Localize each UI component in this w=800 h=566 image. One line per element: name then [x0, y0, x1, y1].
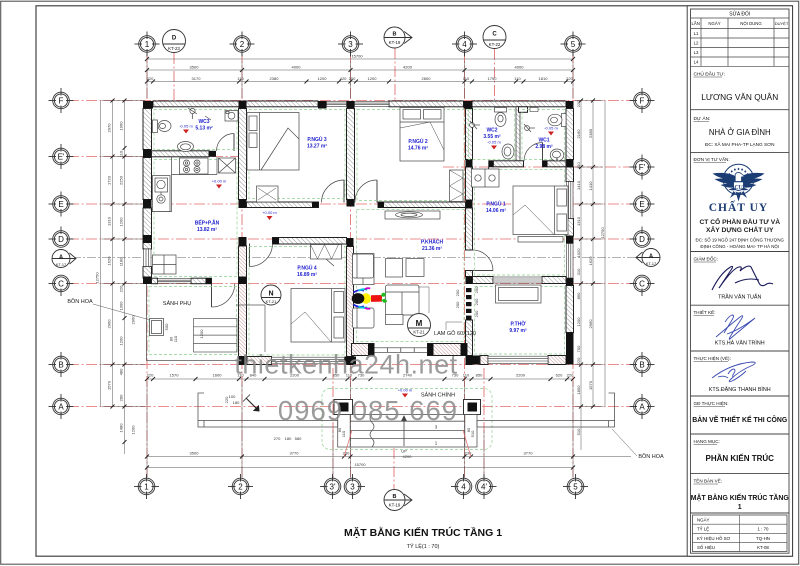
svg-text:LƯƠNG VĂN QUÂN: LƯƠNG VĂN QUÂN	[701, 92, 778, 102]
svg-text:DUYỆT: DUYỆT	[775, 21, 789, 26]
svg-text:180: 180	[233, 400, 240, 405]
svg-text:13.82 m²: 13.82 m²	[197, 227, 217, 233]
svg-text:-0.05 m: -0.05 m	[487, 140, 501, 145]
svg-text:2960: 2960	[588, 319, 593, 329]
svg-text:0969 085 669: 0969 085 669	[278, 395, 458, 426]
svg-text:15700: 15700	[354, 462, 366, 467]
svg-text:P.NGỦ 4: P.NGỦ 4	[297, 265, 317, 272]
svg-text:E': E'	[58, 152, 65, 161]
svg-text:2250: 2250	[119, 175, 124, 185]
svg-text:CHẤT UY: CHẤT UY	[709, 199, 769, 214]
svg-text:+0.00 m: +0.00 m	[262, 210, 277, 215]
svg-text:L2: L2	[694, 41, 699, 46]
svg-text:5.13 m²: 5.13 m²	[195, 126, 213, 132]
svg-text:L3: L3	[694, 50, 699, 55]
svg-text:LAM GỖ 60X120: LAM GỖ 60X120	[434, 330, 476, 337]
svg-text:1620: 1620	[107, 256, 112, 266]
svg-text:220: 220	[224, 396, 229, 403]
svg-text:KT-21: KT-21	[266, 299, 277, 304]
svg-text:4: 4	[462, 40, 467, 49]
svg-text:860: 860	[576, 292, 581, 299]
svg-text:B: B	[393, 32, 397, 38]
svg-text:E: E	[639, 200, 644, 209]
svg-text:+0.00 m: +0.00 m	[212, 179, 227, 184]
svg-text:thietkenha24h.net: thietkenha24h.net	[234, 350, 457, 380]
svg-text:1200: 1200	[576, 317, 581, 327]
svg-text:16.89 m²: 16.89 m²	[297, 272, 317, 278]
svg-text:LẦN: LẦN	[692, 21, 700, 26]
svg-text:220: 220	[567, 373, 574, 378]
svg-text:12750: 12750	[600, 227, 605, 239]
svg-text:ĐỊNH CÔNG - HOÀNG MAI- TP HÀ N: ĐỊNH CÔNG - HOÀNG MAI- TP HÀ NỘI	[700, 244, 779, 249]
svg-text:3: 3	[348, 40, 353, 49]
svg-text:100: 100	[229, 394, 236, 399]
svg-text:WC2: WC2	[486, 128, 497, 134]
svg-text:B: B	[393, 494, 397, 500]
svg-text:HẠNG MỤC:: HẠNG MỤC:	[694, 439, 720, 444]
svg-text:NỘI DUNG: NỘI DUNG	[740, 21, 762, 26]
svg-text:2160: 2160	[576, 129, 581, 139]
svg-text:-0.05 m: -0.05 m	[544, 126, 558, 131]
svg-text:P.NGỦ 3: P.NGỦ 3	[307, 136, 327, 143]
svg-text:M: M	[416, 319, 423, 328]
svg-text:1810: 1810	[539, 76, 549, 81]
svg-text:KT-17: KT-17	[56, 263, 66, 267]
svg-text:2960: 2960	[107, 319, 112, 329]
svg-text:1020: 1020	[576, 248, 581, 258]
svg-text:310: 310	[576, 268, 581, 275]
svg-text:ĐC: SỐ 19 NGÕ 247 ĐỊNH CÔNG T: ĐC: SỐ 19 NGÕ 247 ĐỊNH CÔNG THƯỢNG	[696, 238, 785, 243]
svg-text:E: E	[58, 200, 63, 209]
svg-text:+0.00 m: +0.00 m	[398, 388, 413, 393]
svg-text:1300: 1300	[119, 301, 124, 311]
svg-text:KT-08: KT-08	[757, 545, 769, 550]
svg-text:2.98 m²: 2.98 m²	[535, 144, 553, 150]
svg-text:3500: 3500	[190, 65, 200, 70]
svg-text:CU: CU	[734, 185, 743, 191]
svg-text:C: C	[639, 279, 645, 288]
svg-text:700: 700	[576, 345, 581, 352]
svg-text:3: 3	[350, 482, 355, 491]
svg-text:420: 420	[340, 76, 347, 81]
svg-text:580: 580	[295, 436, 302, 441]
svg-text:KT-22: KT-22	[489, 42, 501, 47]
svg-text:200: 200	[474, 286, 479, 293]
svg-text:1620: 1620	[588, 256, 593, 266]
svg-text:14.76 m²: 14.76 m²	[408, 146, 428, 152]
svg-text:P.THỜ: P.THỜ	[510, 320, 526, 328]
svg-text:3770: 3770	[524, 451, 534, 456]
svg-text:F: F	[59, 96, 64, 105]
svg-text:SỐ HIỆU: SỐ HIỆU	[697, 545, 715, 550]
svg-text:D: D	[639, 235, 645, 244]
svg-text:4000: 4000	[292, 65, 302, 70]
svg-text:TÊN BẢN VẼ:: TÊN BẢN VẼ:	[694, 477, 723, 484]
svg-text:14.06 m²: 14.06 m²	[486, 208, 506, 214]
svg-text:ĐC: XÃ MAI PHA-TP LẠNG SƠN: ĐC: XÃ MAI PHA-TP LẠNG SƠN	[705, 141, 775, 147]
svg-text:13.27 m²: 13.27 m²	[307, 144, 327, 150]
svg-text:4: 4	[461, 482, 466, 491]
svg-text:B: B	[58, 360, 63, 369]
svg-text:1200: 1200	[119, 217, 124, 227]
svg-text:4000: 4000	[515, 65, 525, 70]
svg-text:1: 1	[144, 482, 149, 491]
svg-text:KT-21: KT-21	[413, 330, 425, 335]
svg-text:NGÀY: NGÀY	[697, 518, 710, 523]
svg-text:KT-19: KT-19	[389, 40, 401, 45]
svg-text:NGÀY: NGÀY	[708, 21, 720, 26]
svg-text:KTS.ĐẶNG THANH BÌNH: KTS.ĐẶNG THANH BÌNH	[709, 386, 771, 393]
svg-text:220: 220	[576, 357, 581, 364]
svg-text:2960: 2960	[131, 315, 136, 325]
svg-text:1200: 1200	[131, 425, 136, 435]
svg-text:1600: 1600	[213, 373, 223, 378]
svg-text:9.97 m²: 9.97 m²	[509, 328, 527, 334]
svg-text:1570: 1570	[107, 380, 112, 390]
svg-text:280: 280	[119, 394, 124, 401]
svg-text:1200: 1200	[119, 336, 124, 346]
svg-text:230: 230	[465, 451, 472, 456]
svg-text:THỰC HIỆN (VẼ):: THỰC HIỆN (VẼ):	[694, 354, 731, 361]
svg-text:1960: 1960	[119, 121, 124, 131]
svg-text:1480: 1480	[119, 423, 124, 433]
svg-text:200: 200	[455, 289, 460, 296]
svg-text:220: 220	[576, 100, 581, 107]
svg-text:620: 620	[556, 373, 563, 378]
svg-text:P.NGỦ 2: P.NGỦ 2	[408, 138, 428, 145]
svg-text:200: 200	[349, 76, 356, 81]
svg-text:4200: 4200	[403, 454, 413, 459]
svg-text:220: 220	[566, 76, 573, 81]
svg-text:-0.05 m: -0.05 m	[179, 124, 193, 129]
svg-text:A: A	[649, 254, 654, 260]
svg-text:510: 510	[470, 430, 475, 437]
svg-text:GIÁM ĐỐC:: GIÁM ĐỐC:	[694, 256, 719, 262]
svg-text:3500: 3500	[190, 451, 200, 456]
svg-text:GĐ THỰC HIỆN:: GĐ THỰC HIỆN:	[694, 399, 729, 406]
svg-text:4200: 4200	[403, 65, 413, 70]
svg-text:1310: 1310	[107, 216, 112, 226]
svg-text:110: 110	[237, 76, 244, 81]
svg-text:P.NGỦ 1: P.NGỦ 1	[486, 201, 506, 208]
svg-text:200: 200	[474, 298, 479, 305]
svg-text:THIẾT KẾ:: THIẾT KẾ:	[694, 309, 716, 315]
svg-text:3770: 3770	[290, 451, 300, 456]
svg-text:BẾP+P.ĂN: BẾP+P.ĂN	[195, 220, 220, 227]
svg-text:N: N	[268, 291, 273, 298]
svg-text:A: A	[58, 402, 64, 411]
svg-text:3': 3'	[330, 482, 336, 491]
svg-text:1570: 1570	[588, 380, 593, 390]
svg-text:110: 110	[341, 430, 346, 437]
svg-text:D: D	[58, 235, 64, 244]
svg-text:KTS.HÀ VĂN TRÌNH: KTS.HÀ VĂN TRÌNH	[715, 340, 765, 347]
svg-text:110: 110	[173, 335, 178, 342]
svg-text:15700: 15700	[351, 54, 363, 59]
svg-text:1850: 1850	[576, 385, 581, 395]
svg-text:L1: L1	[694, 31, 699, 36]
svg-text:1200: 1200	[318, 76, 328, 81]
svg-text:NHÀ Ở GIA ĐÌNH: NHÀ Ở GIA ĐÌNH	[709, 128, 771, 137]
svg-text:110: 110	[119, 150, 124, 157]
svg-text:CHỦ ĐẦU TƯ:: CHỦ ĐẦU TƯ:	[694, 71, 725, 78]
svg-text:510: 510	[576, 428, 581, 435]
svg-text:220: 220	[119, 285, 124, 292]
svg-text:SẢNH PHỤ: SẢNH PHỤ	[163, 300, 191, 307]
svg-text:F': F'	[639, 163, 646, 172]
svg-text:C: C	[492, 32, 497, 38]
svg-text:TQ-HN: TQ-HN	[756, 536, 770, 541]
svg-text:220: 220	[147, 373, 154, 378]
svg-text:500: 500	[164, 323, 169, 330]
svg-text:2: 2	[240, 40, 245, 49]
svg-text:WC3: WC3	[198, 119, 209, 125]
svg-text:BỒN HOA: BỒN HOA	[638, 453, 664, 460]
svg-text:KT-19: KT-19	[389, 503, 401, 508]
svg-text:110: 110	[514, 76, 521, 81]
svg-text:2380: 2380	[588, 128, 593, 138]
svg-text:2200: 2200	[516, 373, 526, 378]
svg-text:1180: 1180	[119, 257, 124, 266]
svg-text:SỬA ĐỔI: SỬA ĐỔI	[729, 11, 750, 18]
svg-text:BỒN HOA: BỒN HOA	[67, 298, 93, 305]
svg-text:5: 5	[571, 40, 576, 49]
svg-text:KT-17: KT-17	[646, 262, 656, 266]
svg-text:220: 220	[147, 76, 154, 81]
svg-text:D: D	[172, 36, 177, 42]
svg-text:L4: L4	[694, 60, 699, 65]
svg-text:230: 230	[343, 451, 350, 456]
svg-text:2: 2	[238, 482, 243, 491]
svg-text:KÝ HIỆU HỒ SƠ: KÝ HIỆU HỒ SƠ	[697, 536, 731, 541]
svg-text:A: A	[59, 255, 64, 261]
svg-text:C: C	[58, 279, 64, 288]
svg-text:1720: 1720	[107, 175, 112, 185]
svg-text:P.KHÁCH: P.KHÁCH	[421, 239, 444, 246]
svg-text:5: 5	[573, 482, 578, 491]
svg-text:B: B	[639, 360, 644, 369]
svg-text:2800: 2800	[422, 76, 432, 81]
svg-text:TỶ LỆ(1 : 70): TỶ LỆ(1 : 70)	[407, 542, 440, 550]
svg-text:WC1: WC1	[538, 138, 549, 144]
svg-text:270: 270	[274, 436, 281, 441]
svg-text:12750: 12750	[95, 272, 100, 284]
svg-text:21.36 m²: 21.36 m²	[422, 246, 442, 252]
svg-text:F: F	[640, 96, 645, 105]
svg-text:1750: 1750	[488, 76, 498, 81]
svg-text:1310: 1310	[576, 216, 581, 226]
svg-text:KT-23: KT-23	[168, 46, 180, 51]
svg-text:180: 180	[285, 436, 292, 441]
svg-text:200: 200	[474, 310, 479, 317]
svg-text:A: A	[639, 402, 645, 411]
svg-text:110: 110	[463, 76, 470, 81]
svg-text:1: 1	[145, 40, 150, 49]
svg-text:200: 200	[455, 301, 460, 308]
svg-text:480: 480	[119, 368, 124, 375]
svg-text:2070: 2070	[107, 123, 112, 133]
svg-text:1: 1	[738, 504, 742, 511]
svg-text:110: 110	[576, 162, 581, 169]
svg-text:850: 850	[476, 373, 483, 378]
svg-text:MẶT BẰNG KIẾN TRÚC TẦNG 1: MẶT BẰNG KIẾN TRÚC TẦNG 1	[344, 526, 502, 539]
svg-text:4': 4'	[481, 482, 487, 491]
svg-text:DỰ ÁN:: DỰ ÁN:	[694, 115, 711, 122]
svg-text:1 : 70: 1 : 70	[758, 527, 770, 532]
svg-text:1410: 1410	[588, 181, 593, 191]
svg-text:3170: 3170	[192, 76, 202, 81]
svg-text:PHẦN KIẾN TRÚC: PHẦN KIẾN TRÚC	[706, 453, 775, 463]
svg-text:1200: 1200	[368, 76, 378, 81]
svg-text:110: 110	[463, 373, 470, 378]
svg-text:ĐƠN VỊ TƯ VẤN:: ĐƠN VỊ TƯ VẤN:	[694, 156, 730, 162]
svg-text:2380: 2380	[270, 76, 280, 81]
svg-text:TRẦN VĂN TUẤN: TRẦN VĂN TUẤN	[718, 294, 761, 301]
svg-text:1570: 1570	[170, 373, 180, 378]
svg-text:TỶ LỆ: TỶ LỆ	[697, 527, 709, 532]
svg-text:1200: 1200	[199, 329, 204, 339]
svg-text:1410: 1410	[576, 180, 581, 190]
